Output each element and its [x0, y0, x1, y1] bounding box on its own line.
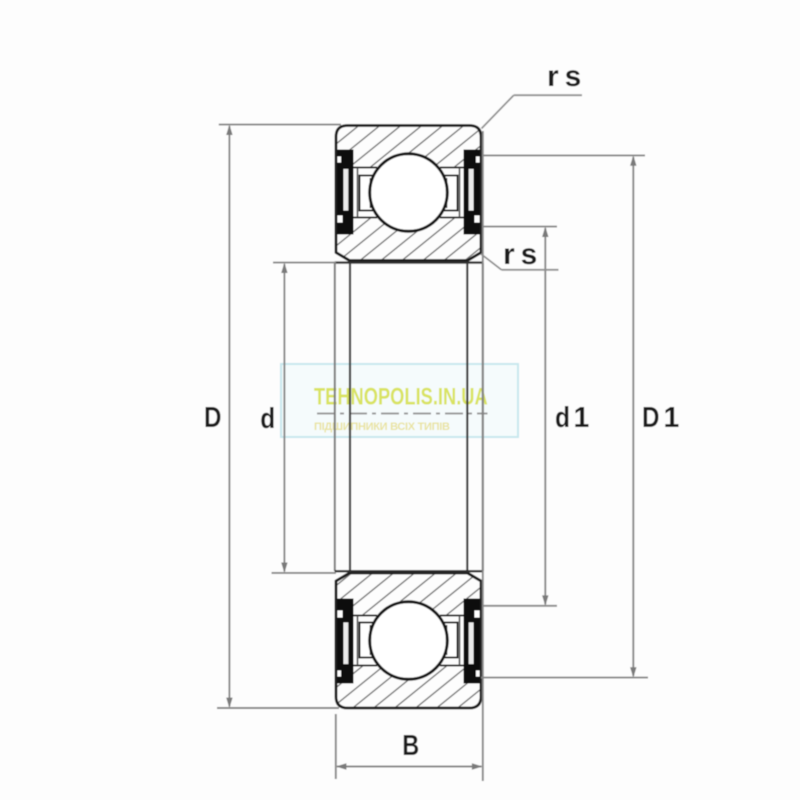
svg-text:D: D	[642, 402, 660, 434]
svg-text:d: d	[555, 402, 570, 434]
svg-text:d: d	[260, 403, 275, 435]
svg-text:1: 1	[574, 402, 590, 434]
svg-text:TEHNOPOLIS.IN.UA: TEHNOPOLIS.IN.UA	[314, 383, 488, 410]
svg-text:rs: rs	[547, 60, 587, 93]
svg-text:D: D	[204, 402, 222, 434]
svg-text:rs: rs	[503, 238, 543, 271]
svg-text:B: B	[402, 730, 419, 762]
svg-text:1: 1	[664, 402, 680, 434]
